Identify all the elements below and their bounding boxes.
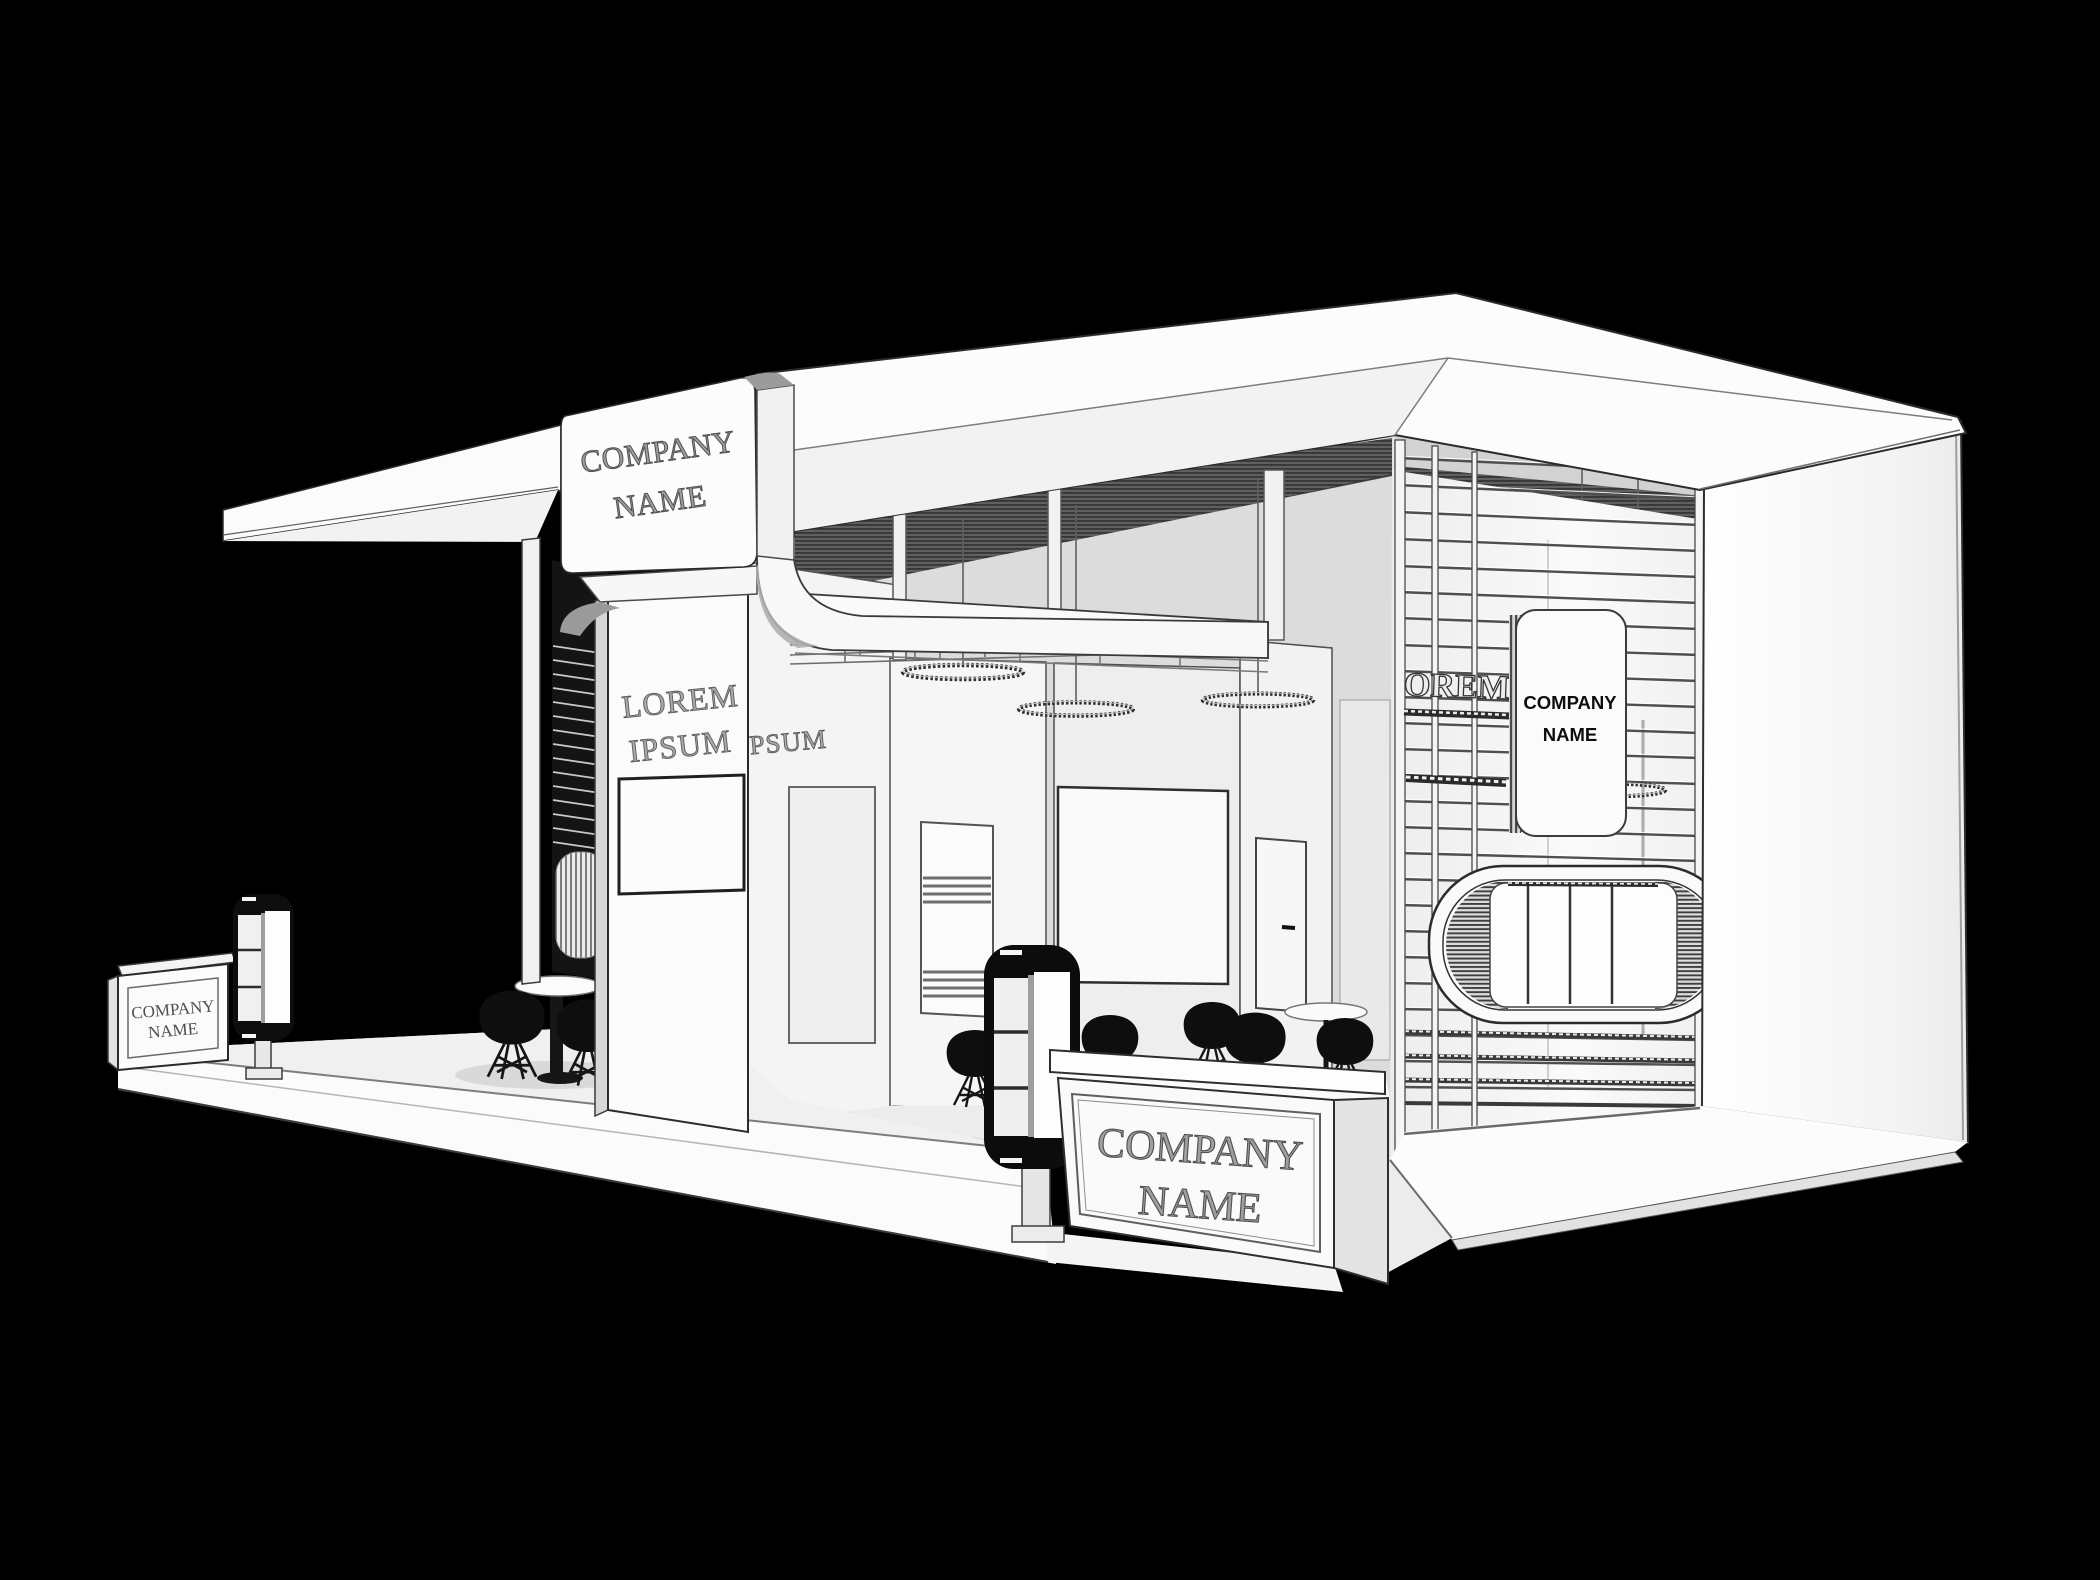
svg-text:NAME: NAME <box>1137 1178 1264 1233</box>
svg-text:COMPANY: COMPANY <box>1523 692 1617 713</box>
svg-text:OREM: OREM <box>1403 666 1510 707</box>
svg-text:NAME: NAME <box>1543 724 1597 745</box>
